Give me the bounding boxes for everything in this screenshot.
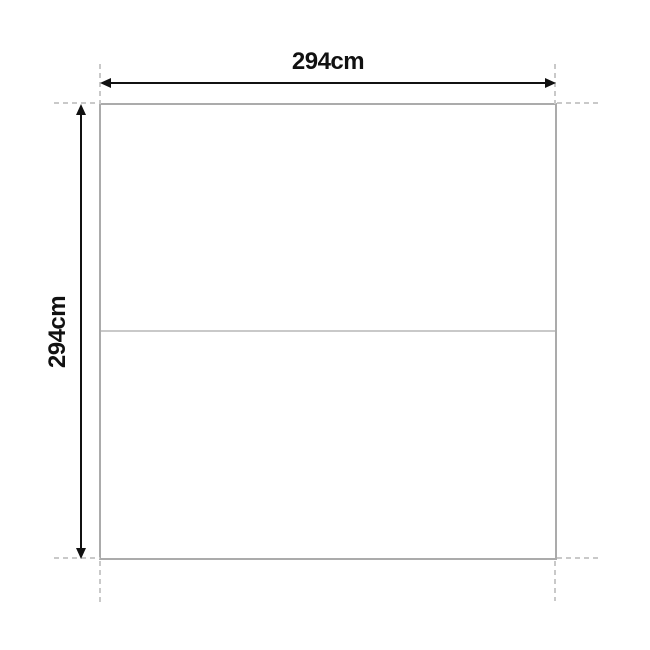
arrowhead-right-icon: [545, 78, 556, 88]
height-dimension-arrow: [76, 104, 86, 559]
panel-divider-line: [101, 330, 555, 332]
width-dimension-arrow: [100, 78, 556, 88]
extension-line-bottom-left-vertical: [99, 561, 101, 603]
arrowhead-down-icon: [76, 548, 86, 559]
height-dimension-label: 294cm: [43, 104, 73, 560]
width-dimension-shaft: [109, 82, 547, 84]
dimension-diagram: 294cm 294cm: [0, 0, 650, 650]
extension-line-bottom-right-horizontal: [557, 557, 599, 559]
width-dimension-label: 294cm: [100, 47, 556, 77]
height-dimension-shaft: [80, 113, 82, 550]
extension-line-bottom-right-vertical: [554, 561, 556, 601]
extension-line-top-right-horizontal: [557, 102, 599, 104]
